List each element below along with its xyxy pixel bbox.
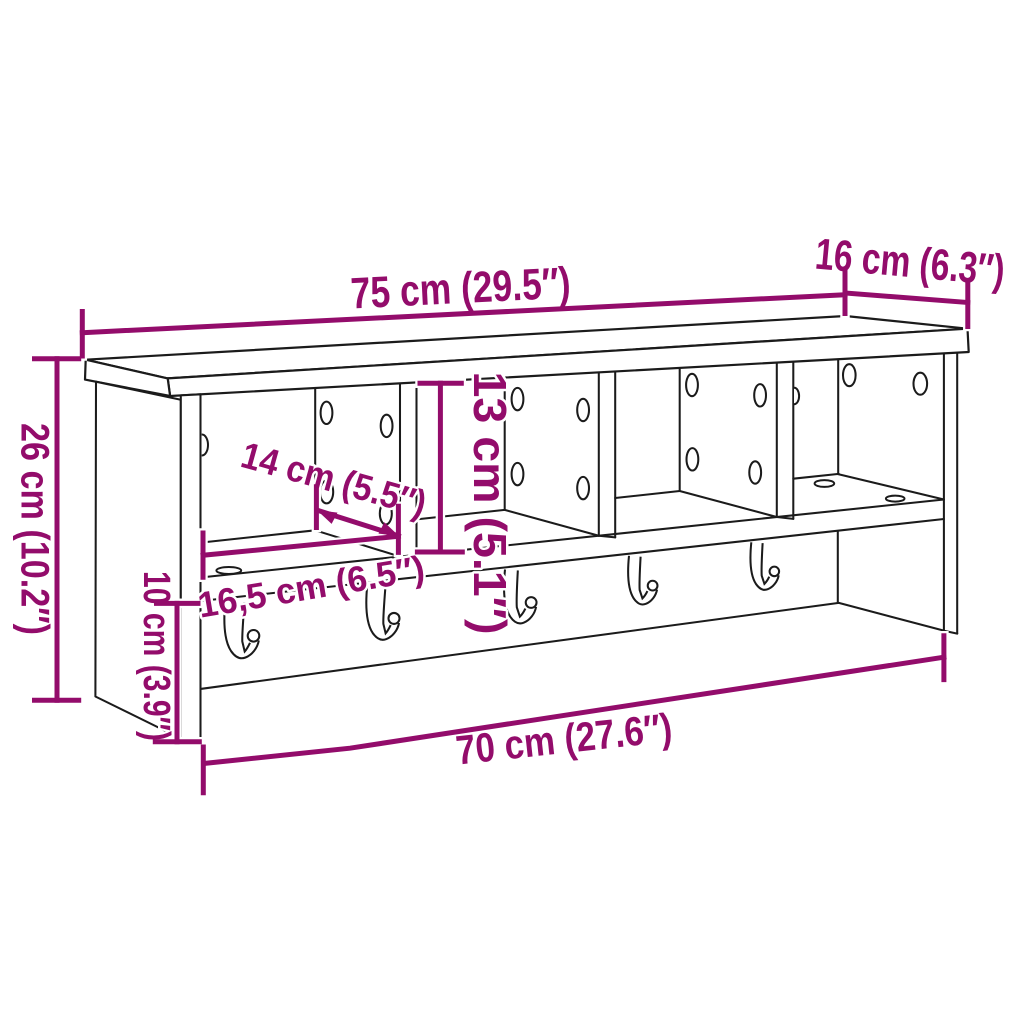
svg-text:13 cm (5.1″): 13 cm (5.1″) — [464, 372, 516, 635]
svg-text:26 cm (10.2″): 26 cm (10.2″) — [13, 423, 57, 635]
svg-text:10 cm (3.9″): 10 cm (3.9″) — [135, 571, 177, 741]
